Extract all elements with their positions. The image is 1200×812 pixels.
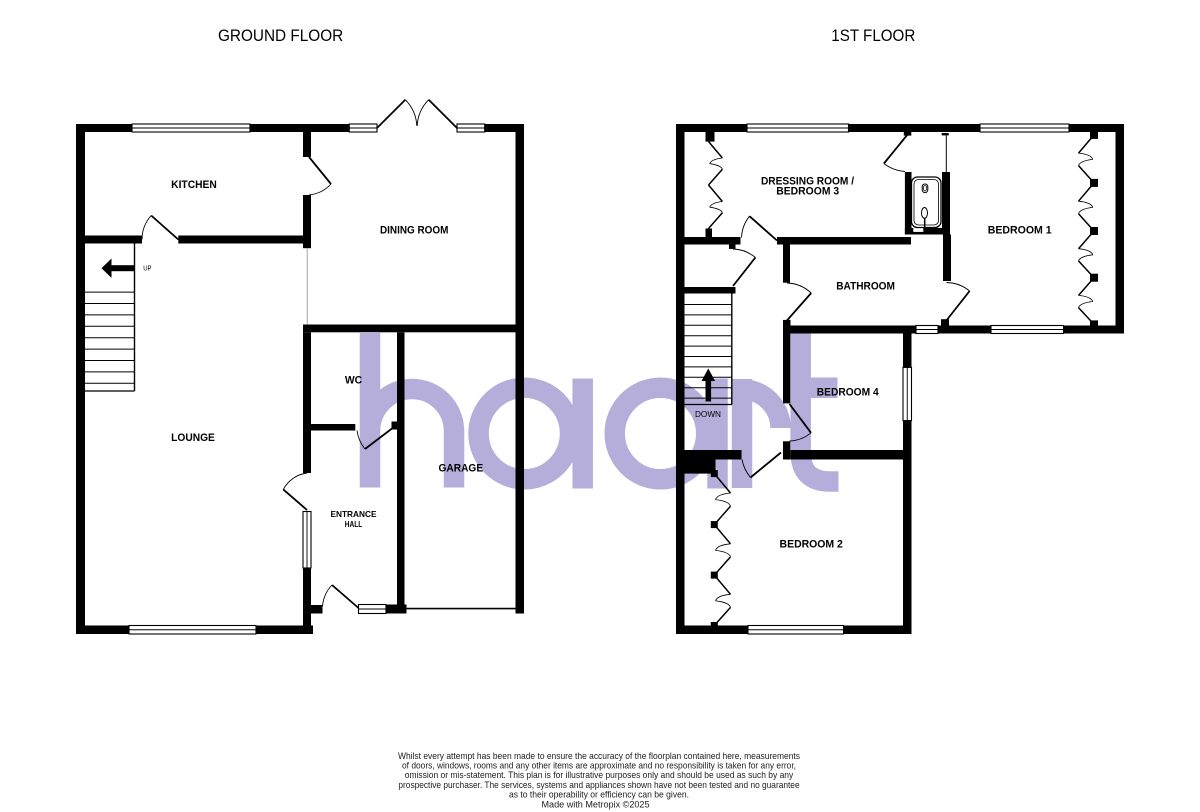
- svg-text:GARAGE: GARAGE: [439, 463, 484, 475]
- svg-text:BEDROOM 1: BEDROOM 1: [988, 225, 1053, 237]
- svg-text:BEDROOM 4: BEDROOM 4: [817, 387, 879, 399]
- svg-text:BEDROOM 3: BEDROOM 3: [776, 186, 839, 198]
- svg-text:BEDROOM 2: BEDROOM 2: [780, 538, 843, 550]
- svg-text:HALL: HALL: [345, 519, 363, 529]
- svg-text:KITCHEN: KITCHEN: [171, 179, 217, 191]
- svg-text:LOUNGE: LOUNGE: [171, 432, 215, 444]
- svg-text:Made with Metropix ©2025: Made with Metropix ©2025: [542, 798, 650, 809]
- svg-text:UP: UP: [143, 264, 151, 273]
- svg-text:DOWN: DOWN: [695, 409, 721, 419]
- svg-text:ENTRANCE: ENTRANCE: [331, 509, 377, 519]
- svg-text:BATHROOM: BATHROOM: [836, 281, 895, 293]
- svg-text:1ST FLOOR: 1ST FLOOR: [831, 26, 915, 45]
- svg-text:WC: WC: [345, 374, 362, 386]
- svg-text:DINING ROOM: DINING ROOM: [380, 224, 449, 236]
- svg-text:GROUND FLOOR: GROUND FLOOR: [218, 26, 343, 45]
